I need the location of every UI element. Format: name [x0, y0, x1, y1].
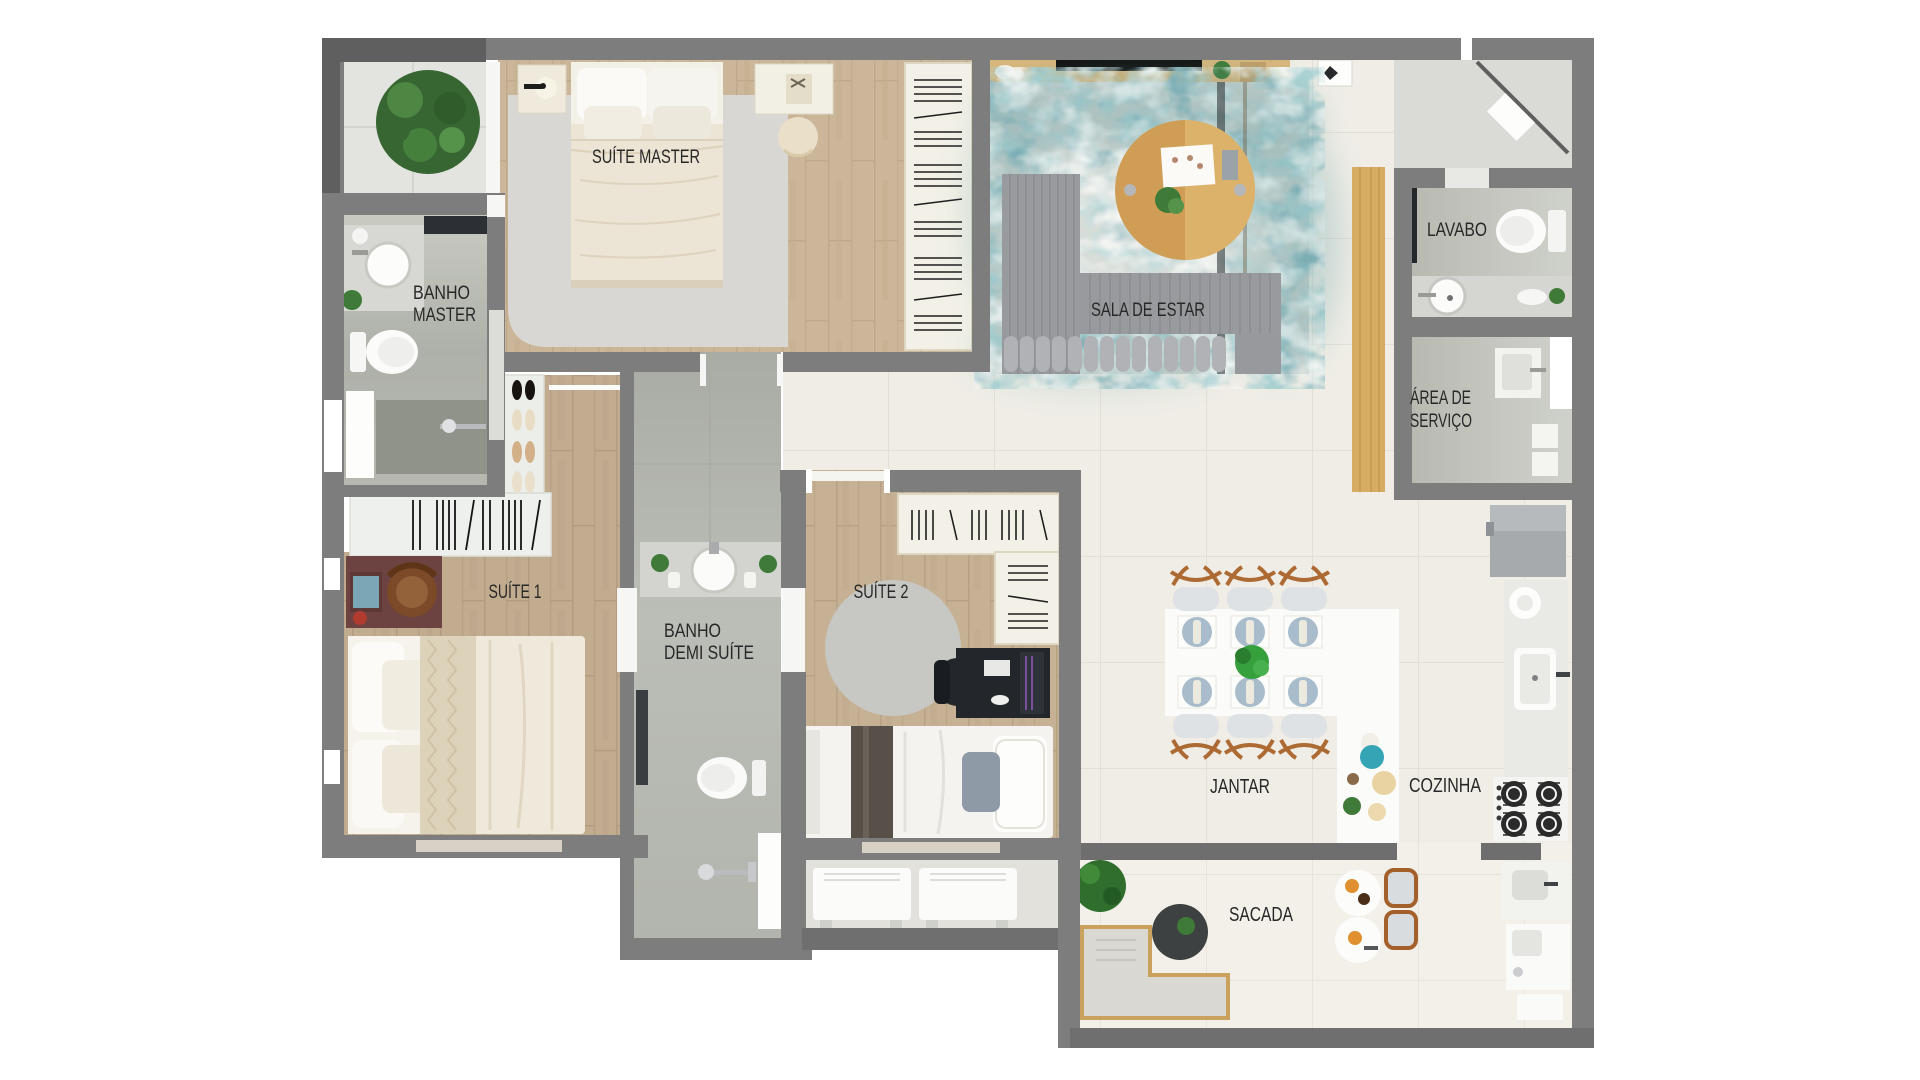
- svg-text:SUÍTE 2: SUÍTE 2: [854, 582, 909, 603]
- svg-text:COZINHA: COZINHA: [1409, 775, 1482, 797]
- svg-text:DEMI SUÍTE: DEMI SUÍTE: [664, 643, 754, 664]
- svg-text:SERVIÇO: SERVIÇO: [1410, 411, 1472, 432]
- svg-text:SACADA: SACADA: [1229, 904, 1294, 926]
- svg-text:JANTAR: JANTAR: [1210, 776, 1270, 798]
- svg-text:BANHO: BANHO: [664, 621, 721, 642]
- svg-text:ÁREA DE: ÁREA DE: [1410, 388, 1471, 409]
- svg-text:BANHO: BANHO: [413, 283, 470, 304]
- svg-text:MASTER: MASTER: [413, 305, 476, 326]
- svg-text:SALA DE ESTAR: SALA DE ESTAR: [1091, 300, 1205, 321]
- svg-text:LAVABO: LAVABO: [1427, 220, 1487, 241]
- svg-text:SUÍTE 1: SUÍTE 1: [489, 582, 542, 603]
- svg-text:SUÍTE MASTER: SUÍTE MASTER: [592, 147, 700, 168]
